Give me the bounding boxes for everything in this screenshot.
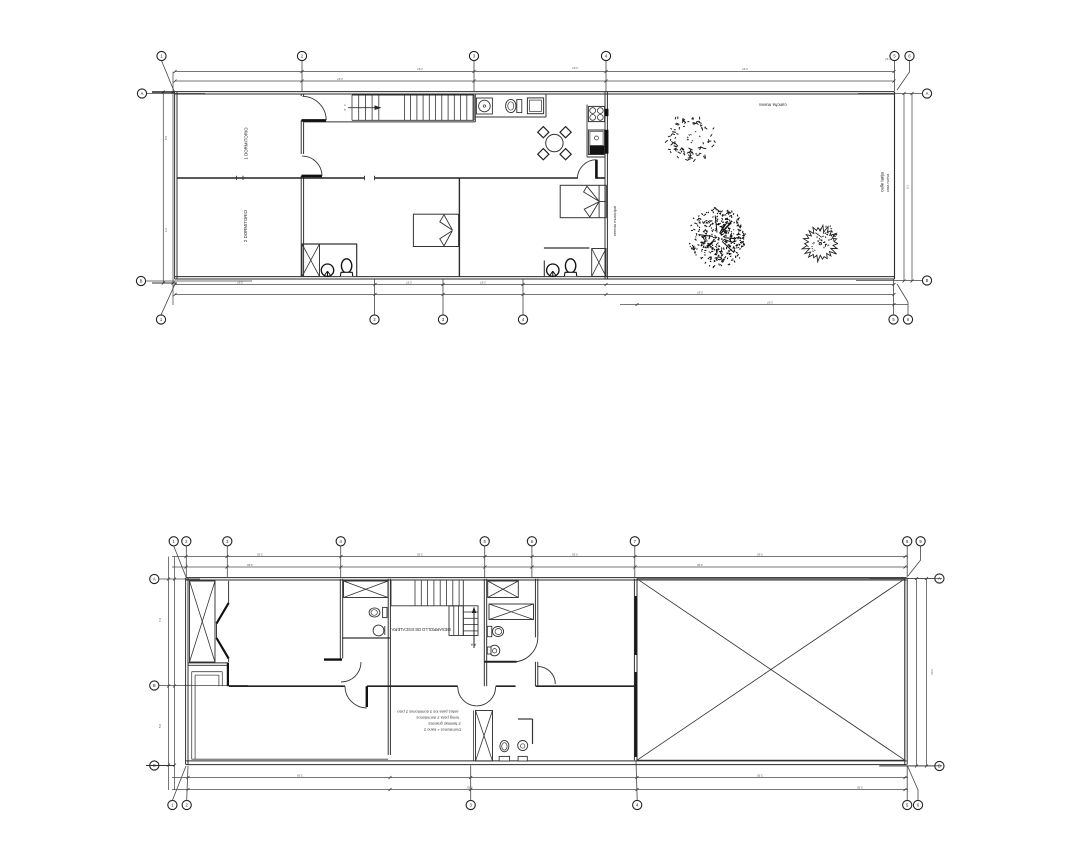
- svg-text:3.30: 3.30: [467, 786, 473, 790]
- svg-text:2.97: 2.97: [885, 57, 891, 61]
- svg-text:Dormitorios + bano 2: Dormitorios + bano 2: [423, 727, 461, 732]
- svg-text:A.A: A.A: [470, 643, 476, 647]
- svg-text:9.1: 9.1: [906, 185, 910, 190]
- svg-text:2 familias grandes: 2 familias grandes: [428, 722, 460, 727]
- svg-text:2 DORMITORIO: 2 DORMITORIO: [243, 209, 248, 242]
- svg-text:3.30: 3.30: [417, 553, 423, 557]
- svg-text:living para 2 dormitorios: living para 2 dormitorios: [416, 716, 458, 721]
- svg-text:7.2: 7.2: [158, 618, 162, 623]
- svg-text:2.97: 2.97: [337, 77, 343, 81]
- svg-text:cancha nueva: cancha nueva: [759, 103, 787, 108]
- svg-text:2.97: 2.97: [697, 291, 703, 295]
- svg-text:3.30: 3.30: [757, 553, 763, 557]
- svg-text:A: A: [938, 576, 941, 581]
- svg-text:2.97: 2.97: [406, 281, 412, 285]
- svg-text:B: B: [140, 279, 143, 284]
- svg-text:B: B: [938, 764, 941, 769]
- svg-text:2.97: 2.97: [742, 67, 748, 71]
- svg-text:8.5: 8.5: [164, 136, 168, 141]
- svg-text:3.30: 3.30: [297, 774, 303, 778]
- svg-text:2.97: 2.97: [417, 67, 423, 71]
- svg-text:3.30: 3.30: [697, 563, 703, 567]
- svg-text:10.2: 10.2: [930, 669, 934, 675]
- svg-text:3.30: 3.30: [757, 774, 763, 778]
- svg-text:4.2: 4.2: [164, 228, 168, 233]
- svg-text:3.30: 3.30: [247, 563, 253, 567]
- svg-text:5.6: 5.6: [158, 724, 162, 729]
- svg-text:C: C: [153, 763, 156, 768]
- svg-text:vereda municipal: vereda municipal: [612, 206, 617, 236]
- svg-text:casa nueva: casa nueva: [886, 174, 890, 192]
- svg-text:1 DORMITORIO: 1 DORMITORIO: [244, 127, 249, 160]
- svg-text:2.97: 2.97: [767, 301, 773, 305]
- svg-text:2.97: 2.97: [237, 281, 243, 285]
- svg-text:3.30: 3.30: [857, 786, 863, 790]
- svg-text:B: B: [926, 278, 929, 283]
- svg-text:2.97: 2.97: [480, 281, 486, 285]
- svg-text:DESARROLLO DE ESCALERA: DESARROLLO DE ESCALERA: [391, 627, 450, 632]
- svg-text:3.30: 3.30: [572, 553, 578, 557]
- svg-text:3.30: 3.30: [257, 553, 263, 557]
- svg-text:A: A: [926, 91, 929, 96]
- svg-text:A: A: [141, 91, 144, 96]
- svg-text:A: A: [153, 577, 156, 582]
- svg-text:2.97: 2.97: [572, 66, 578, 70]
- svg-text:calle tarija: calle tarija: [880, 172, 885, 192]
- svg-text:B: B: [153, 683, 156, 688]
- svg-text:antes para los 3 dormitorios 2: antes para los 3 dormitorios 2 piso: [397, 710, 459, 715]
